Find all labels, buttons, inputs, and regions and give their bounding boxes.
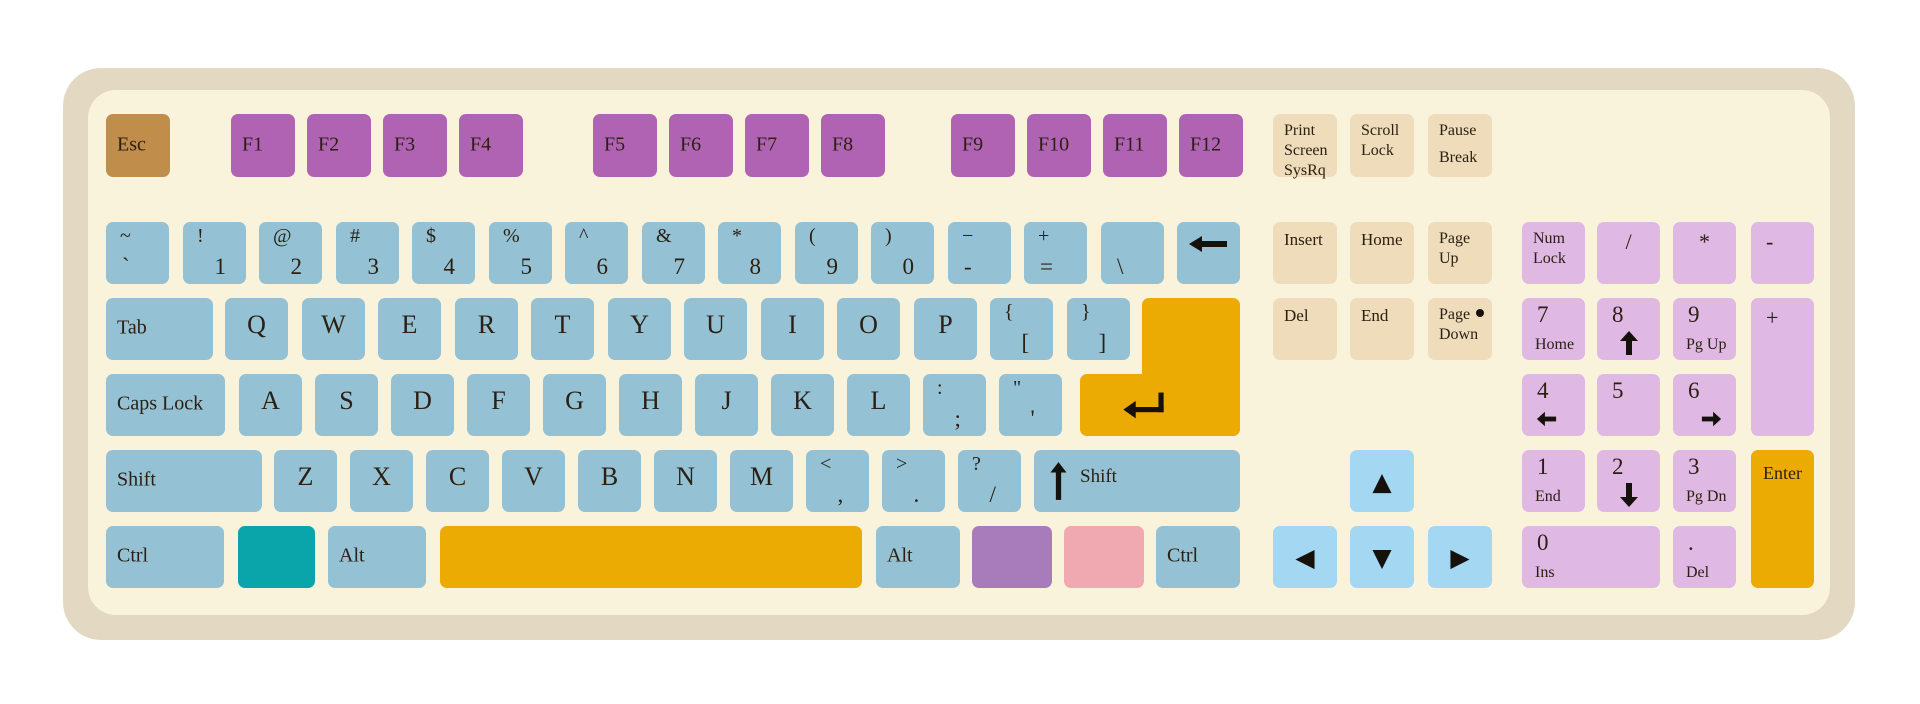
key-digit: 7 <box>1537 302 1549 328</box>
key-label-line: Lock <box>1361 141 1411 161</box>
key-label: F7 <box>756 133 777 156</box>
key-shift-symbol: ( <box>809 225 816 248</box>
key-5[interactable]: %5 <box>489 222 552 284</box>
key-main-symbol: . <box>914 482 920 508</box>
key-f6[interactable]: F6 <box>669 114 733 177</box>
key-c[interactable]: C <box>426 450 489 512</box>
key-num-lock[interactable]: NumLock <box>1522 222 1585 284</box>
key-letter: V <box>502 462 565 492</box>
key-w[interactable]: W <box>302 298 365 360</box>
key-letter: W <box>302 310 365 340</box>
key-blank-purple[interactable] <box>972 526 1052 588</box>
key-sub-label: Pg Up <box>1686 336 1726 354</box>
key-label: F6 <box>680 133 701 156</box>
key-letter: D <box>391 386 454 416</box>
key-numpad-multiply[interactable]: * <box>1673 222 1736 284</box>
key-scroll-lock[interactable]: ScrollLock <box>1350 114 1414 177</box>
key-main-symbol: 8 <box>750 254 762 280</box>
key-label: End <box>1361 306 1388 326</box>
key-f9[interactable]: F9 <box>951 114 1015 177</box>
key-label-lines: PageUp <box>1439 229 1489 275</box>
key-label-lines: NumLock <box>1533 229 1582 275</box>
key-h[interactable]: H <box>619 374 682 436</box>
key-page-up[interactable]: PageUp <box>1428 222 1492 284</box>
key-letter: N <box>654 462 717 492</box>
key-label: Tab <box>117 317 147 340</box>
key-digit: . <box>1688 530 1694 556</box>
backspace-arrow-icon <box>1189 235 1229 253</box>
key-7[interactable]: &7 <box>642 222 705 284</box>
key-symbol: * <box>1673 229 1736 255</box>
key-k[interactable]: K <box>771 374 834 436</box>
key-e[interactable]: E <box>378 298 441 360</box>
key-shift-symbol: : <box>937 377 943 400</box>
key-label-line: Pause <box>1439 121 1489 141</box>
key-digit: 5 <box>1612 378 1624 404</box>
key-backspace[interactable] <box>1177 222 1240 284</box>
key-letter: U <box>684 310 747 340</box>
key-letter: R <box>455 310 518 340</box>
key-digit: 3 <box>1688 454 1700 480</box>
key-letter: B <box>578 462 641 492</box>
key-f5[interactable]: F5 <box>593 114 657 177</box>
key-sub-label: Del <box>1686 564 1709 582</box>
page-down-dot <box>1476 309 1484 317</box>
key-q[interactable]: Q <box>225 298 288 360</box>
key-shift-symbol: > <box>896 453 907 476</box>
key-numpad-5[interactable]: 5 <box>1597 374 1660 436</box>
numpad-right-arrow-icon <box>1700 411 1723 427</box>
key-label: Shift <box>117 469 156 492</box>
key-letter: S <box>315 386 378 416</box>
key-alt-left[interactable]: Alt <box>328 526 426 588</box>
key-f[interactable]: F <box>467 374 530 436</box>
key-label-line: Break <box>1439 148 1489 168</box>
key-numpad-4[interactable]: 4 <box>1522 374 1585 436</box>
key-label: F1 <box>242 133 263 156</box>
key-ctrl-right[interactable]: Ctrl <box>1156 526 1240 588</box>
key-x[interactable]: X <box>350 450 413 512</box>
key-digit: 1 <box>1537 454 1549 480</box>
key-y[interactable]: Y <box>608 298 671 360</box>
key-label: Enter <box>1751 463 1814 484</box>
key-label: Caps Lock <box>117 393 203 416</box>
key-numpad-minus[interactable]: - <box>1751 222 1814 284</box>
key-shift-symbol: − <box>962 225 973 248</box>
key-end[interactable]: End <box>1350 298 1414 360</box>
arrow-down-icon: ▼ <box>1350 526 1414 588</box>
key-equals[interactable]: += <box>1024 222 1087 284</box>
key-label-line: Up <box>1439 249 1489 269</box>
key-p[interactable]: P <box>914 298 977 360</box>
numpad-left-arrow-icon <box>1535 411 1558 427</box>
key-letter: P <box>914 310 977 340</box>
key-main-symbol: ` <box>122 254 130 280</box>
key-shift-symbol: ) <box>885 225 892 248</box>
key-letter: X <box>350 462 413 492</box>
key-main-symbol: [ <box>1022 330 1030 356</box>
key-shift-symbol: + <box>1038 225 1049 248</box>
key-tab[interactable]: Tab <box>106 298 213 360</box>
key-label: F9 <box>962 133 983 156</box>
key-numpad-divide[interactable]: / <box>1597 222 1660 284</box>
key-sub-label: Ins <box>1535 564 1555 582</box>
key-letter: Z <box>274 462 337 492</box>
key-f2[interactable]: F2 <box>307 114 371 177</box>
key-f7[interactable]: F7 <box>745 114 809 177</box>
key-z[interactable]: Z <box>274 450 337 512</box>
key-digit: 6 <box>1688 378 1700 404</box>
key-shift-symbol: ? <box>972 453 981 476</box>
key-letter: H <box>619 386 682 416</box>
key-quote[interactable]: "' <box>999 374 1062 436</box>
key-numpad-2[interactable]: 2 <box>1597 450 1660 512</box>
key-letter: Q <box>225 310 288 340</box>
numpad-down-arrow-icon <box>1619 483 1639 507</box>
key-letter: O <box>837 310 900 340</box>
arrow-left-icon: ◀ <box>1273 526 1337 588</box>
key-period[interactable]: >. <box>882 450 945 512</box>
key-label-line: Scroll <box>1361 121 1411 141</box>
key-arrow-up[interactable]: ▲ <box>1350 450 1414 512</box>
key-label-lines: ScrollLock <box>1361 121 1411 168</box>
key-o[interactable]: O <box>837 298 900 360</box>
key-j[interactable]: J <box>695 374 758 436</box>
key-n[interactable]: N <box>654 450 717 512</box>
key-arrow-down[interactable]: ▼ <box>1350 526 1414 588</box>
key-sub-label: Home <box>1535 336 1574 354</box>
key-digit: 2 <box>1612 454 1624 480</box>
key-space[interactable] <box>440 526 862 588</box>
key-main-symbol: 2 <box>291 254 303 280</box>
key-main-symbol: 1 <box>215 254 227 280</box>
key-comma[interactable]: <, <box>806 450 869 512</box>
key-label: F5 <box>604 133 625 156</box>
key-numpad-6[interactable]: 6 <box>1673 374 1736 436</box>
key-label-line: Lock <box>1533 249 1582 269</box>
key-shift-symbol: ! <box>197 225 204 248</box>
keyboard: EscF1F2F3F4F5F6F7F8F9F10F11F12PrintScree… <box>0 0 1920 704</box>
key-label: F12 <box>1190 133 1221 156</box>
key-letter: L <box>847 386 910 416</box>
key-label-line: Page <box>1439 229 1489 249</box>
key-delete[interactable]: Del <box>1273 298 1337 360</box>
key-bracket-right[interactable]: }] <box>1067 298 1130 360</box>
key-sub-label: End <box>1535 488 1561 506</box>
key-numpad-enter[interactable]: Enter <box>1751 450 1814 588</box>
key-label: Home <box>1361 230 1403 250</box>
key-shift-right[interactable]: Shift <box>1034 450 1240 512</box>
key-f11[interactable]: F11 <box>1103 114 1167 177</box>
key-main-symbol: 6 <box>597 254 609 280</box>
arrow-right-icon: ▶ <box>1428 526 1492 588</box>
key-shift-symbol: % <box>503 225 520 248</box>
key-bracket-left[interactable]: {[ <box>990 298 1053 360</box>
key-9[interactable]: (9 <box>795 222 858 284</box>
key-letter: E <box>378 310 441 340</box>
key-letter: I <box>761 310 824 340</box>
key-s[interactable]: S <box>315 374 378 436</box>
key-letter: F <box>467 386 530 416</box>
return-arrow-icon <box>1121 391 1167 422</box>
key-4[interactable]: $4 <box>412 222 475 284</box>
key-r[interactable]: R <box>455 298 518 360</box>
key-shift-symbol: < <box>820 453 831 476</box>
key-main-symbol: 0 <box>903 254 915 280</box>
key-main-symbol: \ <box>1117 254 1123 280</box>
key-main-symbol: 3 <box>368 254 380 280</box>
key-label: F2 <box>318 133 339 156</box>
key-label: Alt <box>887 545 913 568</box>
key-l[interactable]: L <box>847 374 910 436</box>
key-blank-teal[interactable] <box>238 526 315 588</box>
key-label-lines: PrintScreenSysRq <box>1284 121 1334 168</box>
key-numpad-9[interactable]: 9Pg Up <box>1673 298 1736 360</box>
key-sub-label: Pg Dn <box>1686 488 1726 506</box>
key-label: Ctrl <box>1167 545 1198 568</box>
key-digit: 0 <box>1537 530 1549 556</box>
key-pause-break[interactable]: PauseBreak <box>1428 114 1492 177</box>
arrow-up-icon: ▲ <box>1350 450 1414 512</box>
key-label-lines: PauseBreak <box>1439 121 1489 168</box>
key-caps-lock[interactable]: Caps Lock <box>106 374 225 436</box>
key-arrow-right[interactable]: ▶ <box>1428 526 1492 588</box>
key-symbol: + <box>1751 305 1814 331</box>
key-blank-pink[interactable] <box>1064 526 1144 588</box>
key-symbol: - <box>1751 229 1814 255</box>
key-shift-symbol: " <box>1013 377 1021 400</box>
key-label: Alt <box>339 545 365 568</box>
key-numpad-7[interactable]: 7Home <box>1522 298 1585 360</box>
key-0[interactable]: )0 <box>871 222 934 284</box>
key-digit: 9 <box>1688 302 1700 328</box>
key-numpad-plus[interactable]: + <box>1751 298 1814 436</box>
key-letter: Y <box>608 310 671 340</box>
key-letter: M <box>730 462 793 492</box>
key-home[interactable]: Home <box>1350 222 1414 284</box>
key-esc[interactable]: Esc <box>106 114 170 177</box>
key-label: F3 <box>394 133 415 156</box>
key-minus[interactable]: −- <box>948 222 1011 284</box>
key-shift-symbol: & <box>656 225 672 248</box>
key-main-symbol: ] <box>1099 330 1107 356</box>
key-label: F11 <box>1114 133 1144 156</box>
key-shift-symbol: { <box>1004 301 1014 324</box>
key-main-symbol: ; <box>955 406 961 432</box>
key-letter: J <box>695 386 758 416</box>
key-main-symbol: 4 <box>444 254 456 280</box>
key-letter: T <box>531 310 594 340</box>
key-label-line: Screen <box>1284 141 1334 161</box>
key-ctrl-left[interactable]: Ctrl <box>106 526 224 588</box>
key-page-down[interactable]: PageDown <box>1428 298 1492 360</box>
key-m[interactable]: M <box>730 450 793 512</box>
key-insert[interactable]: Insert <box>1273 222 1337 284</box>
key-shift-symbol: @ <box>273 225 291 248</box>
key-main-symbol: 9 <box>827 254 839 280</box>
key-numpad-3[interactable]: 3Pg Dn <box>1673 450 1736 512</box>
key-label-line: Print <box>1284 121 1334 141</box>
key-grave[interactable]: ~` <box>106 222 169 284</box>
key-f1[interactable]: F1 <box>231 114 295 177</box>
key-main-symbol: 7 <box>674 254 686 280</box>
key-main-symbol: = <box>1040 254 1053 280</box>
key-b[interactable]: B <box>578 450 641 512</box>
key-main-symbol: ' <box>1031 406 1035 432</box>
key-label: F8 <box>832 133 853 156</box>
key-enter-lower[interactable] <box>1080 374 1240 436</box>
key-label-line: Num <box>1533 229 1582 249</box>
key-shift-symbol: # <box>350 225 360 248</box>
key-shift-symbol: * <box>732 225 742 248</box>
key-letter: G <box>543 386 606 416</box>
key-backslash[interactable]: \ <box>1101 222 1164 284</box>
key-g[interactable]: G <box>543 374 606 436</box>
key-label: Del <box>1284 306 1309 326</box>
key-f3[interactable]: F3 <box>383 114 447 177</box>
key-label-line: SysRq <box>1284 161 1334 181</box>
key-label: F10 <box>1038 133 1069 156</box>
key-main-symbol: / <box>990 482 996 508</box>
key-label: Ctrl <box>117 545 148 568</box>
key-shift-symbol: } <box>1081 301 1091 324</box>
key-f8[interactable]: F8 <box>821 114 885 177</box>
key-digit: 4 <box>1537 378 1549 404</box>
key-a[interactable]: A <box>239 374 302 436</box>
key-u[interactable]: U <box>684 298 747 360</box>
key-i[interactable]: I <box>761 298 824 360</box>
key-numpad-decimal[interactable]: .Del <box>1673 526 1736 588</box>
key-arrow-left[interactable]: ◀ <box>1273 526 1337 588</box>
key-8[interactable]: *8 <box>718 222 781 284</box>
key-d[interactable]: D <box>391 374 454 436</box>
key-main-symbol: - <box>964 254 972 280</box>
key-print-screen[interactable]: PrintScreenSysRq <box>1273 114 1337 177</box>
key-6[interactable]: ^6 <box>565 222 628 284</box>
key-shift-left[interactable]: Shift <box>106 450 262 512</box>
key-numpad-0[interactable]: 0Ins <box>1522 526 1660 588</box>
key-semicolon[interactable]: :; <box>923 374 986 436</box>
key-slash[interactable]: ?/ <box>958 450 1021 512</box>
key-label-line: Down <box>1439 325 1489 345</box>
key-v[interactable]: V <box>502 450 565 512</box>
key-label: F4 <box>470 133 491 156</box>
key-shift-symbol: $ <box>426 225 436 248</box>
key-main-symbol: 5 <box>521 254 533 280</box>
key-shift-symbol: ~ <box>120 225 131 248</box>
key-t[interactable]: T <box>531 298 594 360</box>
key-digit: 8 <box>1612 302 1624 328</box>
key-2[interactable]: @2 <box>259 222 322 284</box>
key-alt-right[interactable]: Alt <box>876 526 960 588</box>
key-label: Insert <box>1284 230 1323 250</box>
key-label: Shift <box>1080 466 1117 488</box>
key-main-symbol: , <box>838 482 844 508</box>
key-symbol: / <box>1597 229 1660 255</box>
key-shift-symbol: ^ <box>579 225 588 248</box>
numpad-up-arrow-icon <box>1619 331 1639 355</box>
shift-arrow-icon <box>1050 461 1067 501</box>
key-f12[interactable]: F12 <box>1179 114 1243 177</box>
key-3[interactable]: #3 <box>336 222 399 284</box>
key-letter: A <box>239 386 302 416</box>
key-f10[interactable]: F10 <box>1027 114 1091 177</box>
key-1[interactable]: !1 <box>183 222 246 284</box>
key-letter: C <box>426 462 489 492</box>
key-label: Esc <box>117 133 146 156</box>
key-letter: K <box>771 386 834 416</box>
key-numpad-8[interactable]: 8 <box>1597 298 1660 360</box>
key-numpad-1[interactable]: 1End <box>1522 450 1585 512</box>
key-f4[interactable]: F4 <box>459 114 523 177</box>
